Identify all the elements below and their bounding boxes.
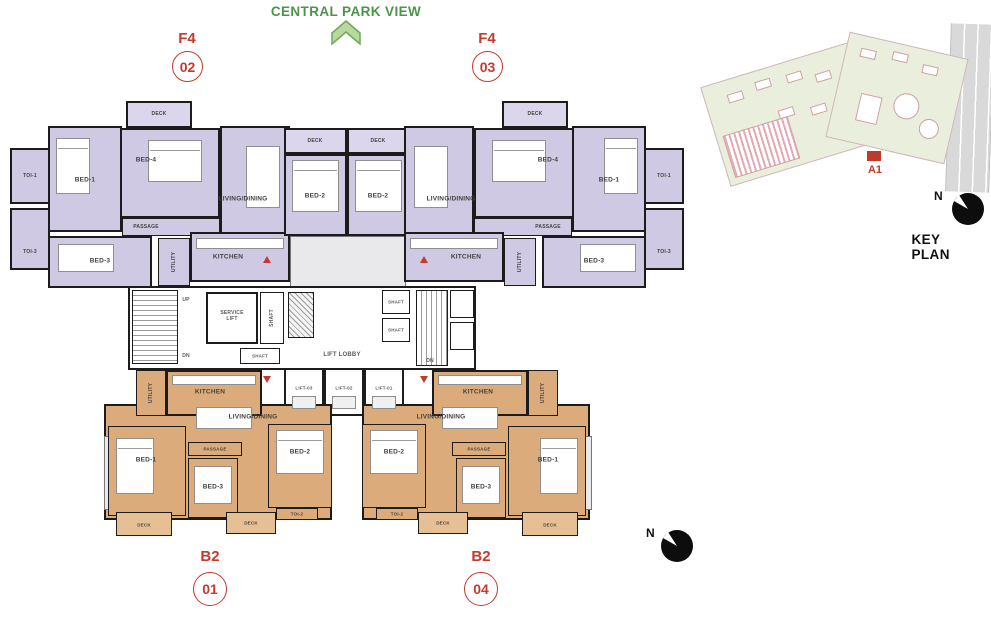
unit-badge-04[interactable]: 04 xyxy=(464,572,498,606)
room-label-lift-03: LIFT-03 xyxy=(295,386,312,391)
keyplan-building xyxy=(891,51,909,63)
room-label-shaft: SHAFT xyxy=(269,309,275,327)
room-label-utility: UTILITY xyxy=(148,383,154,403)
entry-marker-icon xyxy=(263,256,271,263)
unit-type-b2-01: B2 xyxy=(200,548,219,565)
bed-furniture xyxy=(540,438,578,494)
bed-furniture xyxy=(604,138,638,194)
room-label-deck: DECK xyxy=(371,138,386,144)
room-label-lift-01: LIFT-01 xyxy=(375,386,392,391)
room-label-toi3: TOI-3 xyxy=(657,249,671,255)
kitchen-counter-furniture xyxy=(438,375,522,385)
room-label-deck: DECK xyxy=(152,111,167,117)
keyplan-building xyxy=(855,93,883,125)
room-label-passage: PASSAGE xyxy=(133,224,158,230)
room-label-utility: UTILITY xyxy=(540,383,546,403)
kitchen-counter-furniture xyxy=(172,375,256,385)
room-label-toi3: TOI-3 xyxy=(23,249,37,255)
room-label-lift-lobby: LIFT LOBBY xyxy=(323,352,360,358)
entry-marker-icon xyxy=(263,376,271,383)
room-label-bed4: BED-4 xyxy=(136,157,157,164)
room-label-living: LIVING/DINING xyxy=(427,196,476,203)
room-toi3-f4-02 xyxy=(10,208,50,270)
service-court xyxy=(290,236,406,288)
entry-marker-icon xyxy=(420,256,428,263)
lift-car xyxy=(372,396,396,409)
bed-furniture xyxy=(116,438,154,494)
keyplan-building xyxy=(859,48,877,60)
floor-plan-page: CENTRAL PARK VIEW F4 02 F4 03 B2 01 B2 0… xyxy=(0,0,991,626)
entry-marker-icon xyxy=(420,376,428,383)
keyplan-building xyxy=(921,64,939,76)
room-label-passage: PASSAGE xyxy=(467,447,490,452)
staircase-left xyxy=(132,290,178,364)
room-label-bed1: BED-1 xyxy=(538,457,559,464)
room-label-deck: DECK xyxy=(308,138,323,144)
room-label-bed2: BED-2 xyxy=(290,449,311,456)
room-label-kitchen: KITCHEN xyxy=(451,254,481,261)
room-label-deck: DECK xyxy=(137,523,151,528)
room-label-bed4: BED-4 xyxy=(538,157,559,164)
room-label-bed3: BED-3 xyxy=(90,258,111,265)
room-label-shaft: SHAFT xyxy=(252,354,268,359)
room-label-bed3: BED-3 xyxy=(584,258,605,265)
room-label-deck: DECK xyxy=(543,523,557,528)
compass-north-label: N xyxy=(646,526,655,540)
key-plan-title: KEY PLAN xyxy=(912,232,965,262)
room-label-kitchen: KITCHEN xyxy=(213,254,243,261)
room-label-kitchen: KITCHEN xyxy=(463,389,493,396)
room-label-shaft: SHAFT xyxy=(388,328,404,333)
keyplan-round-building xyxy=(891,91,922,122)
unit-badge-01[interactable]: 01 xyxy=(193,572,227,606)
room-label-bed1: BED-1 xyxy=(136,457,157,464)
keyplan-marker-label: A1 xyxy=(868,164,882,176)
unit-badge-02[interactable]: 02 xyxy=(172,51,203,82)
room-label-passage: PASSAGE xyxy=(203,447,226,452)
kitchen-counter-furniture xyxy=(196,238,284,249)
kitchen-counter-furniture xyxy=(410,238,498,249)
room-label-bed1: BED-1 xyxy=(599,177,620,184)
keyplan-building xyxy=(810,103,828,116)
unit-type-b2-04: B2 xyxy=(471,548,490,565)
room-label-service-lift: SERVICE LIFT xyxy=(214,310,250,322)
room-label-bed3: BED-3 xyxy=(471,484,492,491)
duct-room xyxy=(450,290,474,318)
keyplan-building xyxy=(727,90,745,103)
room-label-living: LIVING/DINING xyxy=(229,414,278,421)
room-label-bed2: BED-2 xyxy=(305,193,326,200)
keyplan-row-housing xyxy=(722,116,800,178)
keyplan-building xyxy=(814,70,832,83)
keyplan-building xyxy=(785,70,803,83)
room-label-dn: DN xyxy=(426,358,434,364)
room-label-bed2: BED-2 xyxy=(384,449,405,456)
park-view-arrow-icon xyxy=(331,20,361,51)
room-label-deck: DECK xyxy=(244,521,258,526)
room-label-bed3: BED-3 xyxy=(203,484,224,491)
room-label-shaft: SHAFT xyxy=(388,300,404,305)
shaft-hatched xyxy=(288,292,314,338)
room-label-utility: UTILITY xyxy=(171,252,177,272)
room-label-utility: UTILITY xyxy=(517,252,523,272)
lift-car xyxy=(292,396,316,409)
keyplan-round-building xyxy=(917,117,941,141)
bed-furniture xyxy=(56,138,90,194)
unit-badge-03[interactable]: 03 xyxy=(472,51,503,82)
north-compass-icon xyxy=(951,192,985,231)
keyplan-north-label: N xyxy=(934,189,943,203)
keyplan-building xyxy=(754,78,772,91)
room-label-bed1: BED-1 xyxy=(75,177,96,184)
north-compass-icon xyxy=(660,529,694,568)
room-label-deck: DECK xyxy=(528,111,543,117)
room-label-toi2: TOI-2 xyxy=(291,512,303,517)
room-label-up: UP xyxy=(182,297,189,303)
bed-furniture xyxy=(292,160,339,212)
room-label-living: LIVING/DINING xyxy=(417,414,466,421)
park-view-label: CENTRAL PARK VIEW xyxy=(271,4,421,19)
room-label-toi1: TOI-1 xyxy=(23,173,37,179)
duct-room xyxy=(450,322,474,350)
room-label-deck: DECK xyxy=(436,521,450,526)
room-label-toi1: TOI-1 xyxy=(657,173,671,179)
room-label-lift-02: LIFT-02 xyxy=(335,386,352,391)
room-label-dn: DN xyxy=(182,353,190,359)
staircase-right xyxy=(416,290,448,366)
unit-type-f4-02: F4 xyxy=(178,30,196,47)
bed-furniture xyxy=(355,160,402,212)
unit-type-f4-03: F4 xyxy=(478,30,496,47)
location-marker-icon xyxy=(867,151,881,161)
room-label-toi2: TOI-2 xyxy=(391,512,403,517)
room-label-kitchen: KITCHEN xyxy=(195,389,225,396)
room-label-living: LIVING/DINING xyxy=(219,196,268,203)
lift-car xyxy=(332,396,356,409)
room-label-passage: PASSAGE xyxy=(535,224,560,230)
room-toi3-f4-03 xyxy=(644,208,684,270)
room-label-bed2: BED-2 xyxy=(368,193,389,200)
